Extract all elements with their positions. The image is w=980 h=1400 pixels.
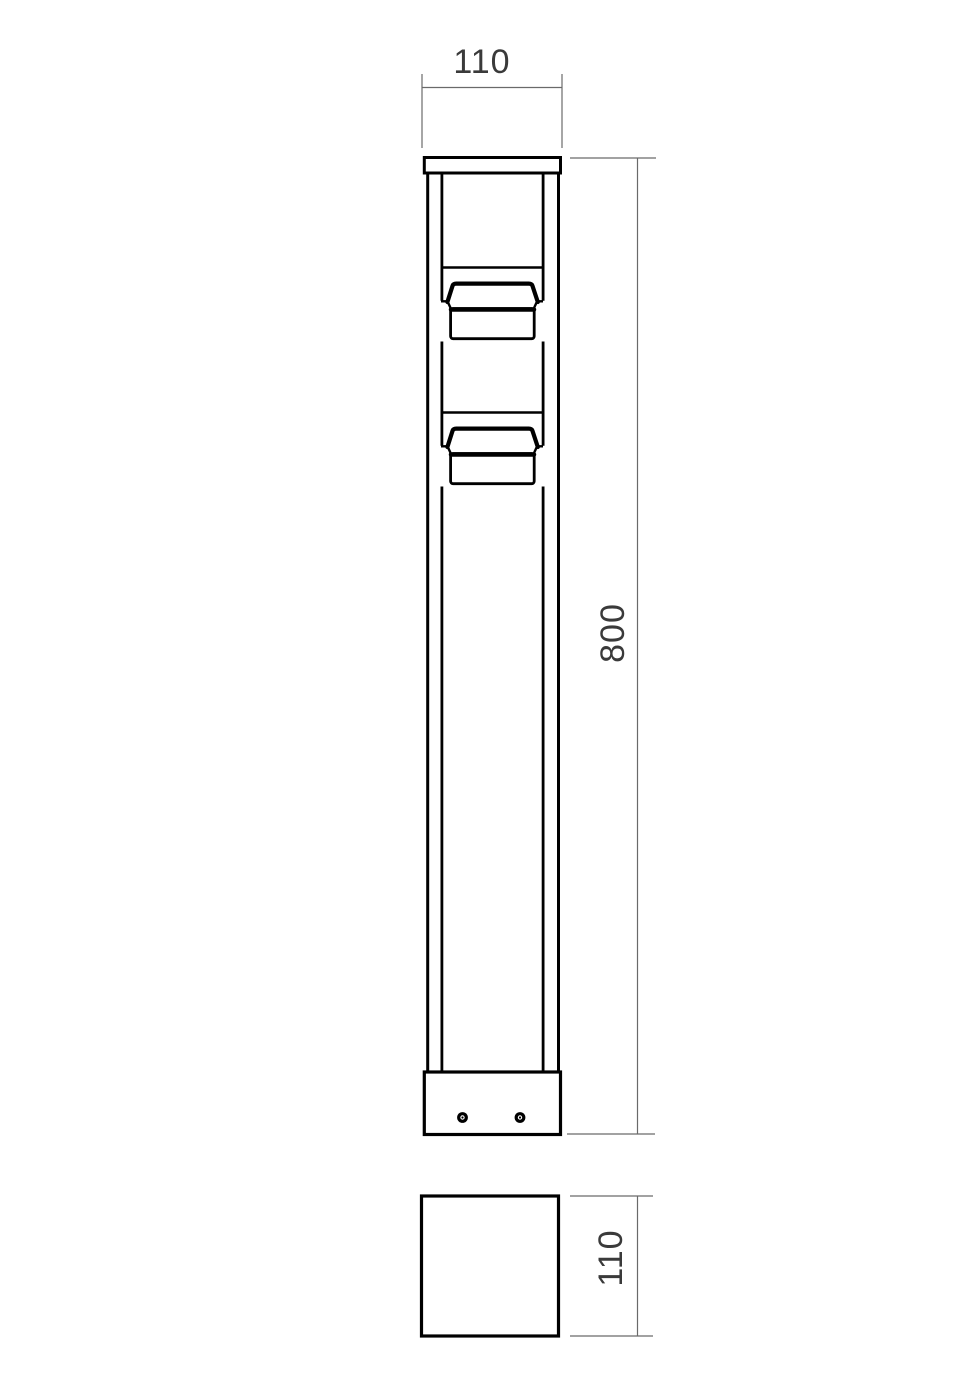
screw-right xyxy=(515,1112,526,1123)
base-footprint-square xyxy=(422,1196,559,1336)
light-aperture-lower xyxy=(441,413,543,484)
dimension-front-width: 110 xyxy=(422,43,562,148)
base-block xyxy=(424,1072,560,1135)
dimension-label-front-width: 110 xyxy=(453,43,510,81)
technical-drawing: 110 800 110 xyxy=(0,0,980,1400)
bollard-top-cap xyxy=(424,158,560,174)
dimension-label-front-height: 800 xyxy=(594,603,632,663)
bottom-view xyxy=(422,1196,559,1336)
dimension-base-side: 110 xyxy=(570,1196,653,1336)
dimension-label-base-side: 110 xyxy=(592,1229,630,1286)
front-view xyxy=(424,158,560,1135)
dimension-front-height: 800 xyxy=(567,158,656,1134)
light-aperture-upper xyxy=(441,268,543,339)
screw-left xyxy=(457,1112,468,1123)
